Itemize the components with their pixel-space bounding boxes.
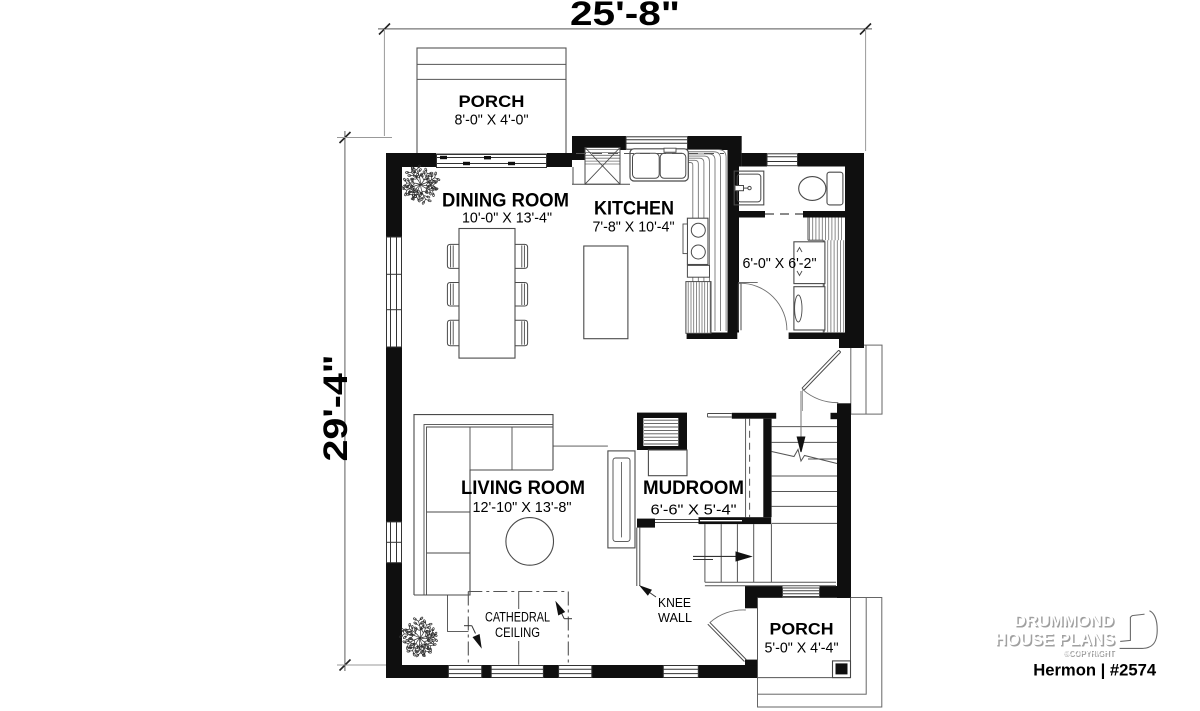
svg-text:KNEE: KNEE <box>658 595 691 610</box>
svg-text:12'-10" X 13'-8": 12'-10" X 13'-8" <box>473 499 572 516</box>
svg-text:29'-4": 29'-4" <box>317 355 355 462</box>
svg-text:DRUMMOND: DRUMMOND <box>1014 613 1114 630</box>
svg-text:MUDROOM: MUDROOM <box>643 478 744 499</box>
svg-text:Hermon | #2574: Hermon | #2574 <box>1033 661 1157 680</box>
svg-text:25'-8": 25'-8" <box>570 0 680 33</box>
svg-text:LIVING ROOM: LIVING ROOM <box>461 478 585 499</box>
svg-text:CEILING: CEILING <box>495 625 540 640</box>
svg-text:5'-0" X 4'-4": 5'-0" X 4'-4" <box>765 641 839 657</box>
svg-text:7'-8" X 10'-4": 7'-8" X 10'-4" <box>593 219 675 236</box>
svg-text:DINING ROOM: DINING ROOM <box>442 191 569 212</box>
svg-text:8'-0" X 4'-0": 8'-0" X 4'-0" <box>455 113 529 129</box>
svg-text:WALL: WALL <box>658 610 692 625</box>
svg-text:PORCH: PORCH <box>770 620 834 639</box>
svg-text:6'-0" X 6'-2": 6'-0" X 6'-2" <box>743 255 817 272</box>
svg-text:©COPYRIGHT: ©COPYRIGHT <box>1063 648 1114 657</box>
svg-text:KITCHEN: KITCHEN <box>594 199 674 220</box>
svg-text:PORCH: PORCH <box>459 92 525 111</box>
svg-text:10'-0" X 13'-4": 10'-0" X 13'-4" <box>462 210 552 227</box>
svg-text:CATHEDRAL: CATHEDRAL <box>485 610 550 625</box>
svg-text:HOUSE PLANS: HOUSE PLANS <box>995 629 1115 649</box>
svg-text:6'-6" X 5'-4": 6'-6" X 5'-4" <box>651 502 737 519</box>
